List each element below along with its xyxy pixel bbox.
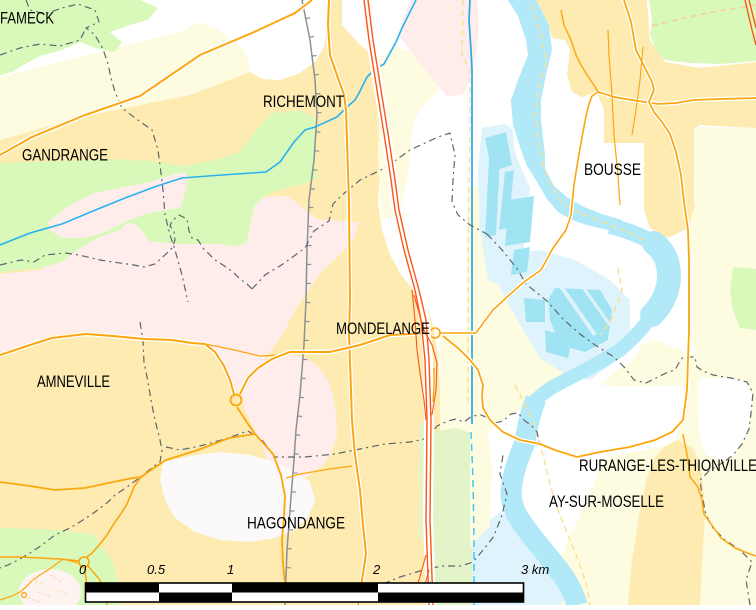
svg-text:MONDELANGE: MONDELANGE bbox=[336, 320, 430, 338]
svg-text:HAGONDANGE: HAGONDANGE bbox=[247, 515, 345, 533]
svg-text:0: 0 bbox=[79, 562, 87, 577]
svg-text:AY-SUR-MOSELLE: AY-SUR-MOSELLE bbox=[549, 493, 664, 511]
svg-text:GANDRANGE: GANDRANGE bbox=[22, 147, 108, 165]
svg-text:RURANGE-LES-THIONVILLE: RURANGE-LES-THIONVILLE bbox=[579, 457, 756, 475]
svg-text:BOUSSE: BOUSSE bbox=[584, 161, 641, 179]
svg-text:3 km: 3 km bbox=[521, 562, 549, 577]
svg-text:AMNEVILLE: AMNEVILLE bbox=[37, 373, 110, 391]
svg-text:0.5: 0.5 bbox=[147, 562, 166, 577]
svg-text:1: 1 bbox=[227, 562, 234, 577]
svg-text:2: 2 bbox=[372, 562, 381, 577]
svg-text:FAMECK: FAMECK bbox=[0, 10, 54, 28]
svg-text:RICHEMONT: RICHEMONT bbox=[263, 93, 344, 111]
